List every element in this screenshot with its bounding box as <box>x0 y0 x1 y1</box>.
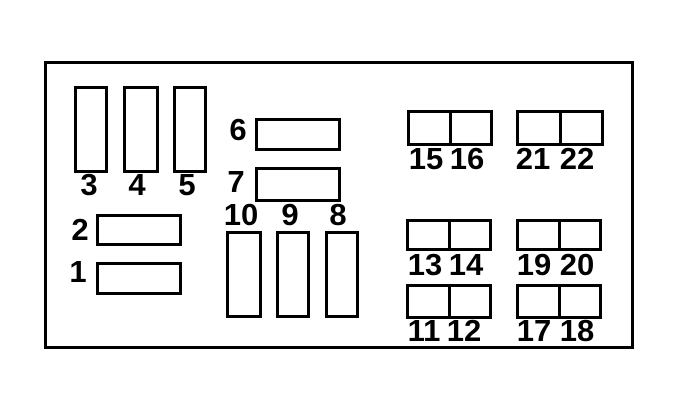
fuse-6-label: 6 <box>229 114 246 145</box>
fuse-1-slot <box>96 262 182 295</box>
fuse-3-slot <box>74 86 108 173</box>
fuse-13-label: 13 <box>408 249 442 280</box>
pair-divider <box>559 113 562 143</box>
fuse-4-label: 4 <box>128 169 145 200</box>
fuse-10-label: 10 <box>224 199 258 230</box>
fuse-22-label: 22 <box>560 143 594 174</box>
fuse-11-label: 11 <box>408 315 441 346</box>
fuse-9-slot <box>276 231 310 318</box>
fuse-2-label: 2 <box>71 214 88 245</box>
fuse-12-label: 12 <box>447 315 481 346</box>
fuse-8-label: 8 <box>329 199 346 230</box>
fuse-20-label: 20 <box>560 249 594 280</box>
fuse-5-slot <box>173 86 207 173</box>
fuse-14-label: 14 <box>449 249 483 280</box>
pair-divider <box>558 222 561 248</box>
pair-divider <box>449 113 452 143</box>
fuse-15-label: 15 <box>409 143 443 174</box>
fuse-10-slot <box>226 231 262 318</box>
fuse-16-label: 16 <box>450 143 484 174</box>
pair-divider <box>448 222 451 248</box>
fuse-5-label: 5 <box>178 169 195 200</box>
fuse-9-label: 9 <box>281 199 298 230</box>
fuse-18-label: 18 <box>560 315 594 346</box>
fuse-21-label: 21 <box>516 143 550 174</box>
fuse-4-slot <box>123 86 159 173</box>
fuse-8-slot <box>325 231 359 318</box>
fuse-6-slot <box>255 118 341 151</box>
fuse-7-label: 7 <box>227 166 244 197</box>
fuse-19-label: 19 <box>517 249 551 280</box>
fuse-3-label: 3 <box>80 169 97 200</box>
fuse-2-slot <box>96 214 182 246</box>
pair-divider <box>448 287 451 316</box>
fuse-17-label: 17 <box>517 315 551 346</box>
fuse-1-label: 1 <box>69 256 86 287</box>
fuse-box-diagram: 3 4 5 2 1 6 7 10 9 8 15 16 21 22 13 14 1… <box>0 0 677 413</box>
pair-divider <box>558 287 561 316</box>
